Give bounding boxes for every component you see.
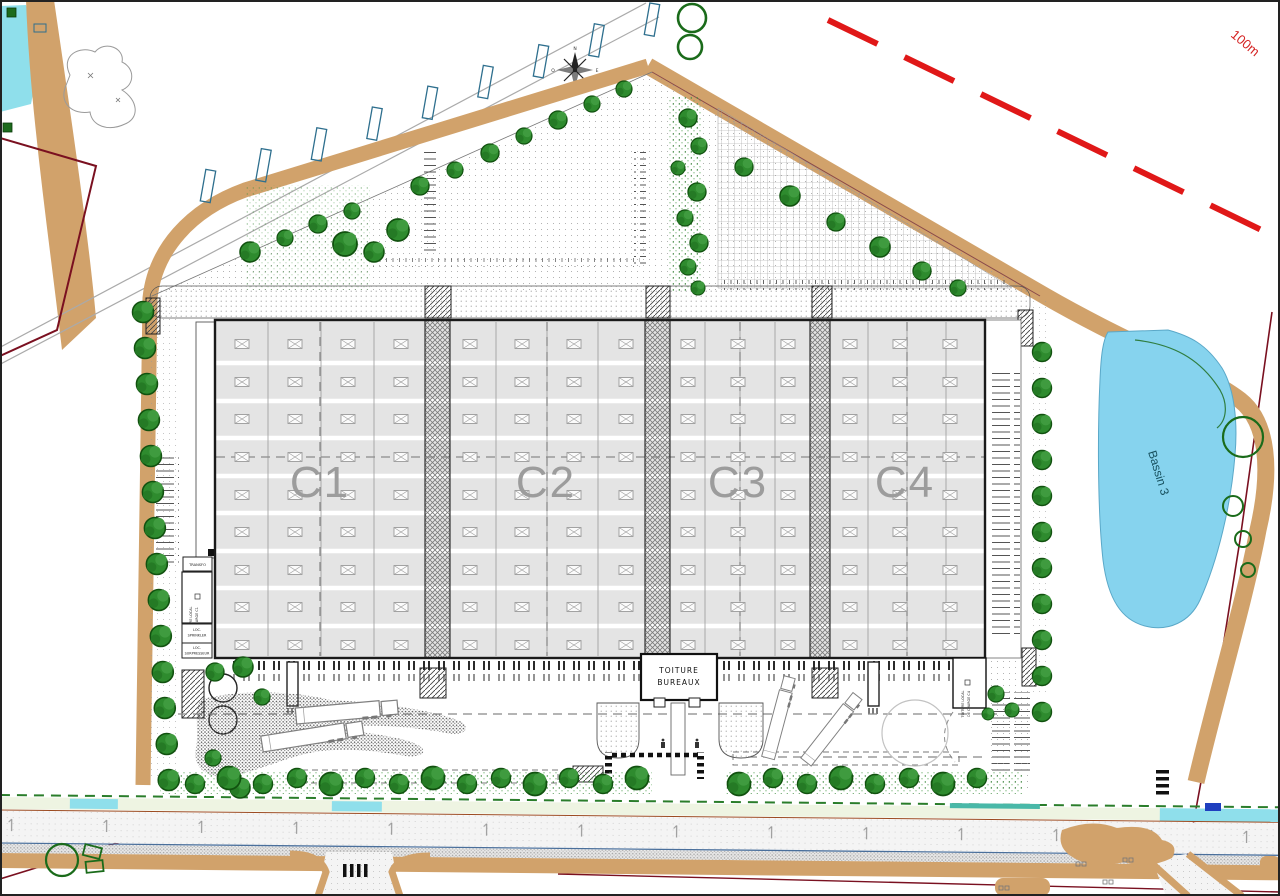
tree-icon: [1033, 415, 1052, 434]
west-corridor: [196, 322, 215, 558]
skylight-icon: [681, 566, 695, 575]
skylight-icon: [341, 378, 355, 387]
skylight-icon: [341, 340, 355, 349]
tree-icon: [827, 213, 845, 231]
entrance-island: [597, 703, 639, 758]
tree-icon: [158, 770, 179, 791]
tree-icon: [277, 230, 293, 246]
green-marker-icon: [7, 8, 16, 17]
tree-icon: [344, 203, 360, 219]
compass-e: E: [596, 68, 599, 74]
tree-icon: [691, 138, 707, 154]
office-label-2: BUREAUX: [657, 678, 700, 687]
skylight-icon: [394, 415, 408, 424]
tree-icon: [411, 177, 429, 195]
skylight-icon: [619, 453, 633, 462]
skylight-icon: [235, 378, 249, 387]
skylight-icon: [394, 453, 408, 462]
skylight-icon: [619, 566, 633, 575]
charge-c4-label-2: DE CHARGE C4: [967, 691, 971, 717]
skylight-icon: [681, 528, 695, 537]
skylight-icon: [463, 415, 477, 424]
tree-icon: [516, 128, 532, 144]
tree-icon: [549, 111, 567, 129]
skylight-icon: [681, 641, 695, 650]
tree-icon: [422, 767, 445, 790]
tree-icon: [764, 769, 783, 788]
tree-icon: [870, 237, 890, 257]
tree-icon: [240, 242, 260, 262]
tree-icon: [333, 232, 357, 256]
skylight-icon: [681, 603, 695, 612]
skylight-icon: [619, 378, 633, 387]
tree-icon: [233, 657, 253, 677]
tree-icon: [560, 769, 579, 788]
tree-icon: [1033, 487, 1052, 506]
skylight-icon: [463, 340, 477, 349]
skylight-icon: [893, 378, 907, 387]
skylight-icon: [843, 340, 857, 349]
tree-icon: [691, 281, 705, 295]
skylight-icon: [943, 340, 957, 349]
landscape-mound: [1260, 856, 1280, 880]
tree-icon: [1033, 451, 1052, 470]
pedestrian-crossing: [342, 864, 370, 877]
tree-icon: [218, 767, 241, 790]
skylight-icon: [567, 566, 581, 575]
skylight-icon: [288, 528, 302, 537]
skylight-icon: [781, 378, 795, 387]
skylight-icon: [893, 641, 907, 650]
skylight-icon: [235, 491, 249, 500]
skylight-icon: [288, 641, 302, 650]
charge-c4-label-1: TOITURE LOCAL: [961, 690, 965, 718]
skylight-icon: [288, 378, 302, 387]
skylight-icon: [394, 378, 408, 387]
skylight-icon: [235, 641, 249, 650]
compass-o: O: [551, 68, 555, 74]
tree-icon: [1033, 631, 1052, 650]
skylight-icon: [515, 603, 529, 612]
tree-icon: [988, 686, 1004, 702]
tree-icon: [584, 96, 600, 112]
tree-icon: [677, 210, 693, 226]
skylight-icon: [463, 528, 477, 537]
skylight-icon: [893, 415, 907, 424]
tree-icon: [1033, 667, 1052, 686]
skylight-icon: [681, 453, 695, 462]
channel-strip: [950, 803, 1040, 809]
sprinkler-label-2: SPRINKLER: [188, 634, 207, 638]
tree-icon: [364, 242, 384, 262]
tree-icon: [138, 410, 159, 431]
tree-icon: [671, 161, 685, 175]
office-annex: [654, 698, 665, 707]
cell-c2-label: C2: [516, 458, 576, 507]
bus-stop-marker: [1205, 803, 1221, 811]
skylight-icon: [235, 566, 249, 575]
tree-icon: [288, 769, 307, 788]
skylight-icon: [619, 415, 633, 424]
skylight-icon: [235, 528, 249, 537]
parking-row: [634, 150, 646, 266]
tree-icon: [1033, 379, 1052, 398]
skylight-icon: [341, 603, 355, 612]
firewall-separator: [810, 320, 830, 658]
skylight-icon: [619, 641, 633, 650]
skylight-icon: [731, 566, 745, 575]
skylight-icon: [463, 378, 477, 387]
parking-row: [370, 258, 640, 267]
surpresseur-label-2: SURPRESSEUR: [185, 652, 210, 656]
tree-icon: [320, 773, 343, 796]
skylight-icon: [394, 528, 408, 537]
skylight-icon: [843, 453, 857, 462]
west-parking-row: [155, 452, 179, 567]
skylight-icon: [341, 641, 355, 650]
tree-icon: [968, 769, 987, 788]
skylight-icon: [619, 528, 633, 537]
skylight-icon: [619, 340, 633, 349]
tree-icon: [524, 773, 547, 796]
compass-n: N: [573, 46, 576, 52]
parking-row: [424, 148, 436, 256]
tree-icon: [728, 773, 751, 796]
skylight-icon: [843, 566, 857, 575]
skylight-icon: [619, 491, 633, 500]
skylight-icon: [843, 378, 857, 387]
skylight-icon: [567, 378, 581, 387]
tree-icon: [798, 775, 817, 794]
crossing-strip: [70, 799, 118, 809]
skylight-icon: [341, 415, 355, 424]
tree-icon: [626, 767, 649, 790]
skylight-icon: [463, 603, 477, 612]
skylight-icon: [843, 603, 857, 612]
skylight-icon: [731, 528, 745, 537]
access-hatch: [425, 286, 451, 318]
tree-icon: [1033, 703, 1052, 722]
skylight-icon: [893, 566, 907, 575]
tree-icon: [492, 769, 511, 788]
skylight-icon: [394, 340, 408, 349]
tree-icon: [688, 183, 706, 201]
skylight-icon: [235, 415, 249, 424]
skylight-icon: [781, 453, 795, 462]
office-annex: [689, 698, 700, 707]
tree-icon: [152, 662, 173, 683]
skylight-icon: [943, 491, 957, 500]
tree-icon: [735, 158, 753, 176]
skylight-icon: [515, 415, 529, 424]
tree-icon: [1033, 595, 1052, 614]
firewall-separator: [645, 320, 670, 658]
loading-docks: [232, 659, 972, 670]
skylight-icon: [781, 415, 795, 424]
tree-icon: [156, 734, 177, 755]
skylight-icon: [515, 528, 529, 537]
skylight-icon: [843, 641, 857, 650]
skylight-icon: [515, 641, 529, 650]
skylight-icon: [394, 603, 408, 612]
gate-post: [697, 752, 704, 779]
tree-icon: [982, 708, 994, 720]
tree-icon: [186, 775, 205, 794]
skylight-icon: [567, 415, 581, 424]
tree-icon: [136, 374, 157, 395]
crossing-strip: [332, 801, 382, 811]
entrance-walkway: [671, 703, 685, 775]
skylight-icon: [463, 453, 477, 462]
skylight-icon: [681, 415, 695, 424]
skylight-icon: [341, 566, 355, 575]
skylight-icon: [781, 340, 795, 349]
skylight-icon: [681, 340, 695, 349]
cell-c1-label: C1: [290, 458, 350, 507]
skylight-icon: [731, 340, 745, 349]
office-roof: [641, 654, 717, 700]
skylight-icon: [781, 603, 795, 612]
entrance-island: [719, 703, 763, 758]
tree-icon: [1033, 523, 1052, 542]
skylight-icon: [943, 641, 957, 650]
skylight-icon: [567, 603, 581, 612]
skylight-icon: [731, 415, 745, 424]
tree-icon: [148, 590, 169, 611]
cell-c4-label: C4: [875, 458, 935, 507]
surpresseur-label-1: LOC.: [193, 646, 201, 650]
skylight-icon: [463, 641, 477, 650]
skylight-icon: [288, 340, 302, 349]
skylight-icon: [943, 566, 957, 575]
skylight-icon: [288, 415, 302, 424]
pedestrian-crossing: [1156, 768, 1169, 798]
skylight-icon: [781, 641, 795, 650]
technical-rooms: TRANSFO TOITURE LOCAL DE CHARGE C1 LOC. …: [182, 557, 212, 658]
tree-icon: [254, 689, 270, 705]
tree-icon: [140, 446, 161, 467]
tree-icon: [133, 302, 154, 323]
skylight-icon: [681, 491, 695, 500]
tree-icon: [913, 262, 931, 280]
skylight-icon: [943, 528, 957, 537]
access-hatch: [812, 286, 832, 318]
tree-icon: [144, 518, 165, 539]
transfo-label: TRANSFO: [188, 563, 206, 567]
dock-ramp: [812, 668, 838, 698]
tree-icon: [458, 775, 477, 794]
skylight-icon: [515, 566, 529, 575]
gravel-band: [150, 286, 1030, 318]
dock-ramp: [420, 668, 446, 698]
skylight-icon: [341, 528, 355, 537]
tree-icon: [134, 338, 155, 359]
tree-icon: [680, 259, 696, 275]
skylight-icon: [567, 528, 581, 537]
skylight-icon: [463, 491, 477, 500]
tree-icon: [1005, 703, 1019, 717]
green-marker-icon: [3, 123, 12, 132]
skylight-icon: [288, 566, 302, 575]
tree-icon: [616, 81, 632, 97]
skylight-icon: [781, 491, 795, 500]
tree-icon: [780, 186, 800, 206]
tree-icon: [447, 162, 463, 178]
tree-icon: [481, 144, 499, 162]
skylight-icon: [394, 566, 408, 575]
access-hatch: [646, 286, 670, 318]
skylight-icon: [943, 378, 957, 387]
skylight-icon: [567, 641, 581, 650]
skylight-icon: [893, 528, 907, 537]
skylight-icon: [781, 528, 795, 537]
skylight-icon: [893, 603, 907, 612]
firewall-separator: [425, 320, 450, 658]
tree-icon: [356, 769, 375, 788]
dock-bumpers: [232, 674, 972, 682]
cell-c3-label: C3: [708, 458, 768, 507]
skylight-icon: [893, 340, 907, 349]
skylight-icon: [235, 603, 249, 612]
tree-icon: [154, 698, 175, 719]
tree-icon: [205, 750, 221, 766]
tree-icon: [390, 775, 409, 794]
skylight-icon: [567, 340, 581, 349]
tree-icon: [206, 663, 224, 681]
skylight-icon: [619, 603, 633, 612]
site-plan-page: N S E O 100m TRANSFO TOITURE LOCAL DE CH…: [0, 0, 1280, 896]
tree-icon: [690, 234, 708, 252]
skylight-icon: [515, 378, 529, 387]
skylight-icon: [288, 603, 302, 612]
east-parking-row: [988, 368, 1020, 634]
tree-icon: [142, 482, 163, 503]
skylight-icon: [681, 378, 695, 387]
tree-icon: [866, 775, 885, 794]
office-label-1: TOITURE: [658, 666, 699, 675]
tree-icon: [950, 280, 966, 296]
skylight-icon: [731, 641, 745, 650]
skylight-icon: [731, 603, 745, 612]
tree-icon: [1033, 343, 1052, 362]
skylight-icon: [463, 566, 477, 575]
site-plan-svg: N S E O 100m TRANSFO TOITURE LOCAL DE CH…: [0, 0, 1280, 896]
tree-icon: [900, 769, 919, 788]
skylight-icon: [843, 415, 857, 424]
tree-icon: [309, 215, 327, 233]
skylight-icon: [943, 603, 957, 612]
tree-icon: [594, 775, 613, 794]
tree-icon: [150, 626, 171, 647]
tree-icon: [146, 554, 167, 575]
warehouse-building: C1 C2 C3 C4: [215, 320, 985, 658]
tree-icon: [830, 767, 853, 790]
tree-icon: [679, 109, 697, 127]
se-landscape: [988, 658, 1033, 788]
skylight-icon: [394, 491, 408, 500]
tree-icon: [387, 219, 409, 241]
sprinkler-label-1: LOC.: [193, 628, 201, 632]
skylight-icon: [731, 378, 745, 387]
skylight-icon: [781, 566, 795, 575]
skylight-icon: [515, 340, 529, 349]
tree-icon: [932, 773, 955, 796]
skylight-icon: [943, 415, 957, 424]
skylight-icon: [235, 453, 249, 462]
skylight-icon: [394, 641, 408, 650]
skylight-icon: [235, 340, 249, 349]
skylight-icon: [843, 491, 857, 500]
skylight-icon: [843, 528, 857, 537]
skylight-icon: [943, 453, 957, 462]
tree-icon: [1033, 559, 1052, 578]
tree-icon: [254, 775, 273, 794]
